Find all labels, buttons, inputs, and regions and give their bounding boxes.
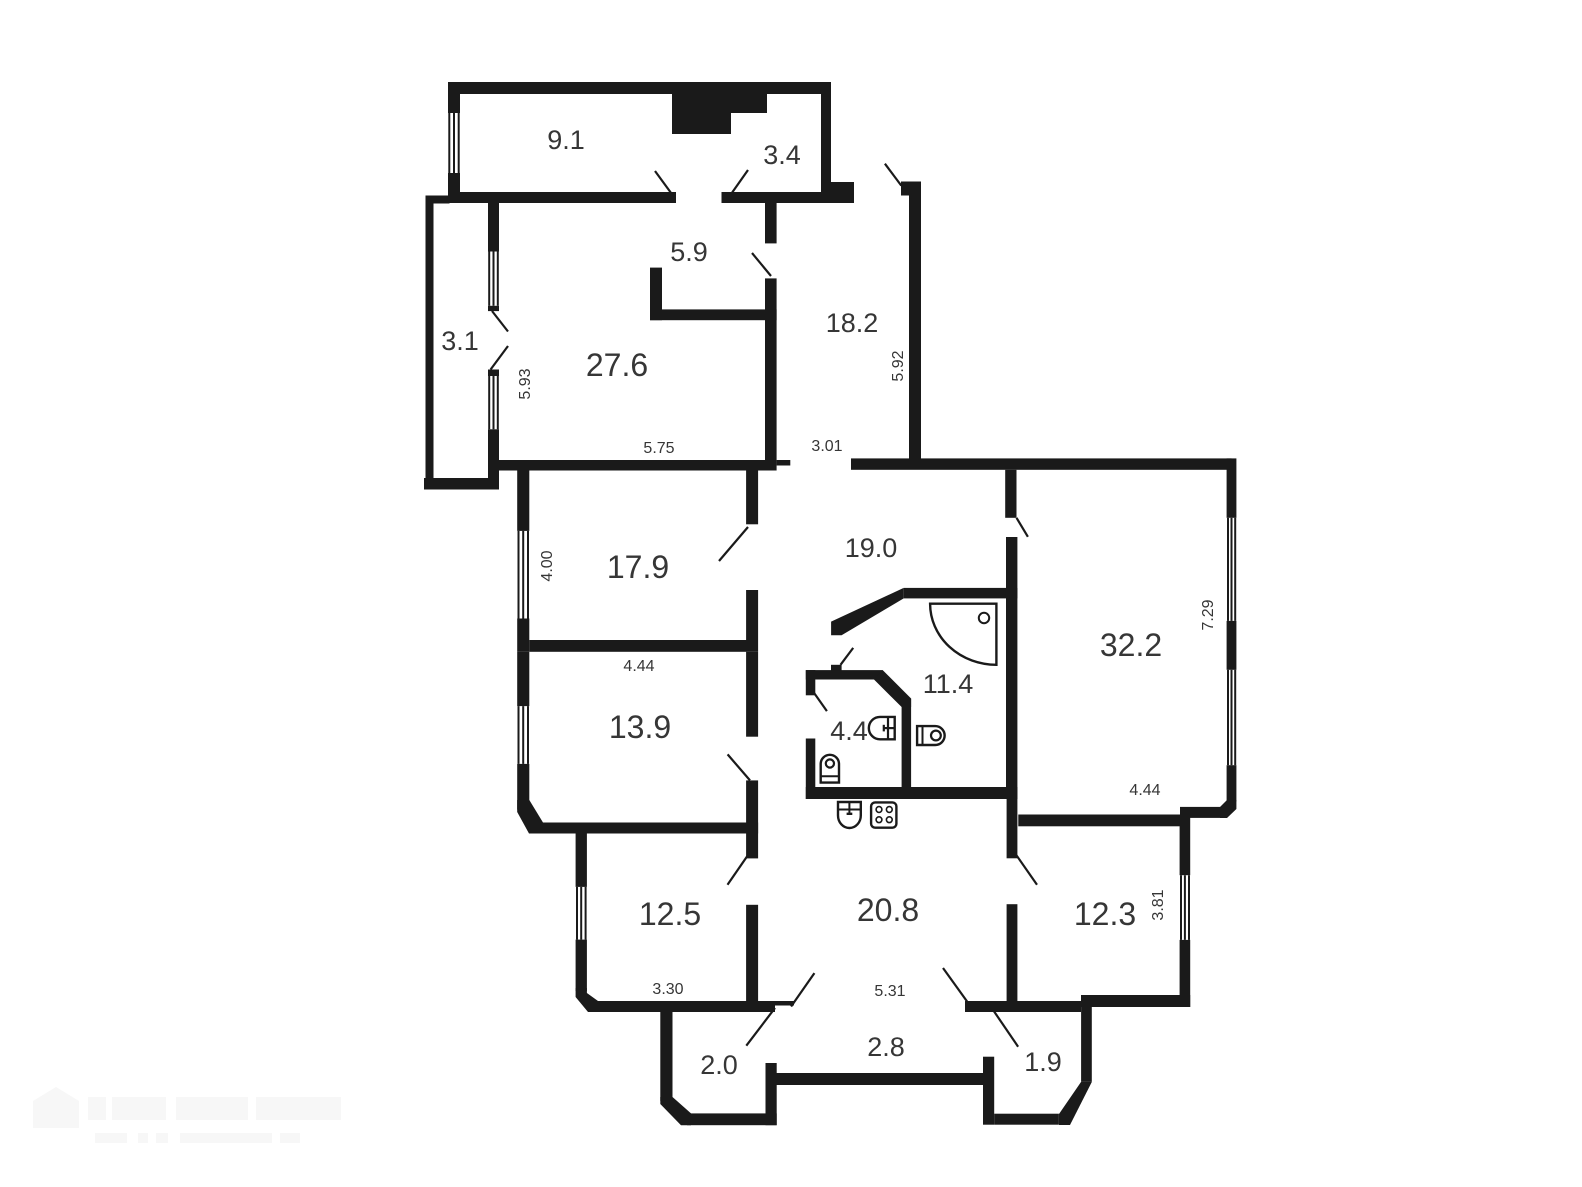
svg-text:3.30: 3.30	[652, 981, 683, 998]
svg-text:4.00: 4.00	[539, 550, 556, 581]
svg-text:5.9: 5.9	[670, 237, 708, 267]
svg-text:5.75: 5.75	[643, 440, 674, 457]
svg-text:3.81: 3.81	[1150, 889, 1167, 920]
svg-text:32.2: 32.2	[1100, 627, 1162, 663]
svg-text:5.92: 5.92	[890, 350, 907, 381]
svg-text:2.8: 2.8	[867, 1032, 905, 1062]
svg-text:4.4: 4.4	[830, 716, 868, 746]
svg-text:3.4: 3.4	[763, 140, 801, 170]
svg-text:3.01: 3.01	[811, 438, 842, 455]
svg-text:20.8: 20.8	[857, 892, 919, 928]
svg-text:18.2: 18.2	[826, 308, 879, 338]
svg-text:3.1: 3.1	[441, 326, 479, 356]
svg-text:11.4: 11.4	[923, 669, 974, 699]
svg-text:12.5: 12.5	[639, 896, 701, 932]
svg-text:5.31: 5.31	[874, 983, 905, 1000]
svg-text:4.44: 4.44	[1129, 782, 1160, 799]
svg-text:1.9: 1.9	[1024, 1047, 1062, 1077]
svg-text:19.0: 19.0	[845, 533, 898, 563]
svg-text:12.3: 12.3	[1074, 896, 1136, 932]
svg-text:17.9: 17.9	[607, 549, 669, 585]
svg-text:13.9: 13.9	[609, 709, 671, 745]
svg-text:7.29: 7.29	[1200, 599, 1217, 630]
svg-text:9.1: 9.1	[547, 125, 585, 155]
svg-text:27.6: 27.6	[586, 347, 648, 383]
svg-text:2.0: 2.0	[700, 1050, 738, 1080]
svg-text:5.93: 5.93	[517, 368, 534, 399]
svg-text:4.44: 4.44	[623, 658, 654, 675]
